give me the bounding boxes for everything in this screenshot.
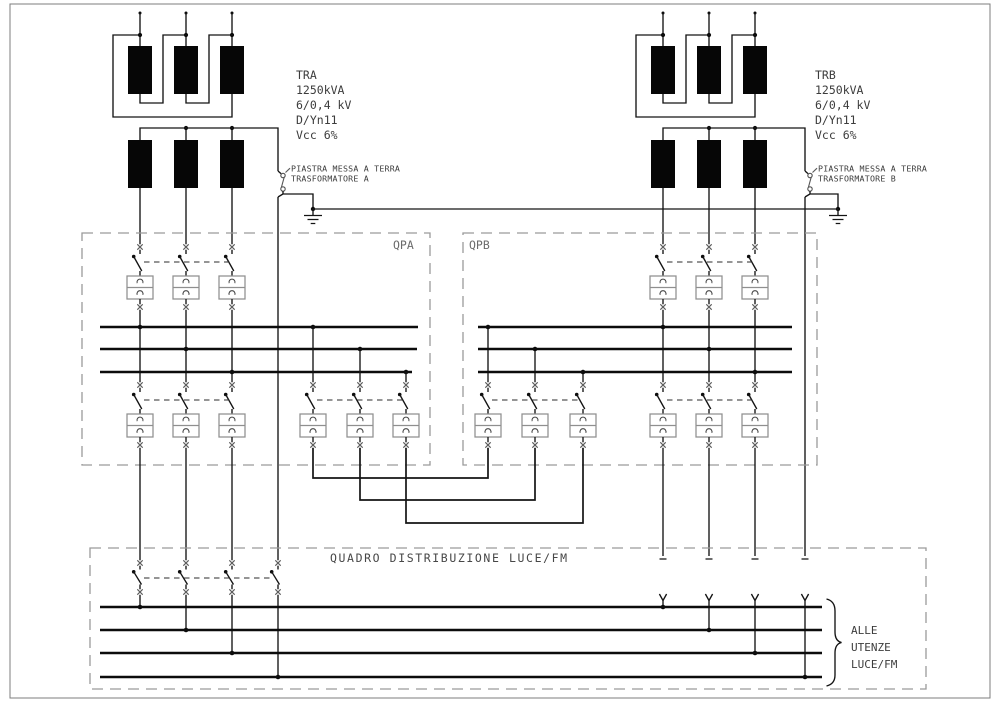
- tra-name: TRA: [296, 68, 317, 82]
- incomer-breaker-trb: [650, 244, 768, 309]
- distribution-label: QUADRO DISTRIBUZIONE LUCE/FM: [330, 551, 569, 565]
- tie-breaker-qpa: [300, 327, 419, 448]
- trb-vector-group: D/Yn11: [815, 113, 857, 127]
- trb-power: 1250kVA: [815, 83, 864, 97]
- switchboard-qpb: QPB: [463, 233, 817, 465]
- tie-breaker-qpb: [475, 327, 596, 448]
- tra-vector-group: D/Yn11: [296, 113, 338, 127]
- distribution-plugin-entries: [659, 559, 808, 677]
- feeder-breaker-qpa: [127, 382, 245, 447]
- outgoing-label-3: LUCE/FM: [851, 658, 898, 671]
- qpa-label: QPA: [393, 238, 414, 252]
- distribution-enclosure: [90, 548, 926, 689]
- trb-ratio: 6/0,4 kV: [815, 98, 870, 112]
- earth-plate-b-line2: TRASFORMATORE B: [818, 174, 896, 184]
- qpb-label: QPB: [469, 238, 490, 252]
- neutral-link-icon: [808, 173, 812, 191]
- tie-interconnection-wires: [313, 448, 583, 523]
- outgoing-users: ALLE UTENZE LUCE/FM: [827, 599, 898, 686]
- distribution-main-switch: [132, 560, 281, 677]
- tra-power: 1250kVA: [296, 83, 345, 97]
- brace: [827, 599, 842, 686]
- busbars-qpb: [478, 325, 792, 375]
- feeder-breaker-qpb: [650, 382, 768, 447]
- earth-plate-a-line2: TRASFORMATORE A: [291, 174, 369, 184]
- earthing-transformer-b: PIASTRA MESSA A TERRA TRASFORMATORE B: [805, 164, 927, 557]
- outgoing-label-2: UTENZE: [851, 641, 891, 654]
- tra-ratio: 6/0,4 kV: [296, 98, 351, 112]
- tra-impedance: Vcc 6%: [296, 128, 338, 142]
- distribution-board: QUADRO DISTRIBUZIONE LUCE/FM ALLE UTEN: [90, 548, 926, 689]
- trb-impedance: Vcc 6%: [815, 128, 857, 142]
- trb-name: TRB: [815, 68, 836, 82]
- incomer-breaker-tra: [127, 244, 245, 309]
- schematic-svg: TRA 1250kVA 6/0,4 kV D/Yn11 Vcc 6% TRB 1…: [0, 0, 1000, 707]
- earth-plate-a-line1: PIASTRA MESSA A TERRA: [291, 164, 400, 174]
- outgoing-label-1: ALLE: [851, 624, 878, 637]
- qpb-feeder-drops: [663, 448, 755, 556]
- busbars-distribution: [100, 605, 822, 680]
- neutral-link-icon: [281, 173, 285, 191]
- busbars-qpa: [100, 325, 418, 375]
- switchboard-qpa: QPA: [82, 233, 430, 465]
- drawing-sheet: TRA 1250kVA 6/0,4 kV D/Yn11 Vcc 6% TRB 1…: [0, 0, 1000, 707]
- earth-plate-b-line1: PIASTRA MESSA A TERRA: [818, 164, 927, 174]
